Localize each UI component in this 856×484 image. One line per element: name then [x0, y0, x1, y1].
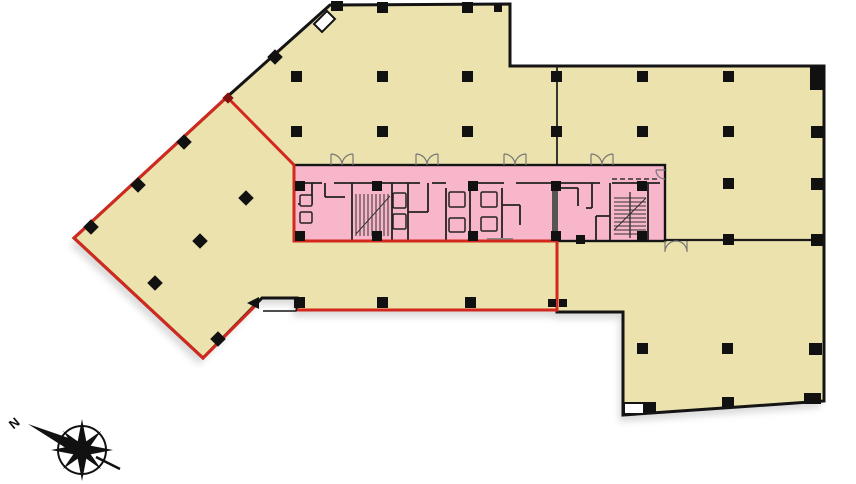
column [809, 343, 822, 355]
column [811, 126, 823, 138]
column [722, 343, 733, 354]
floor-plan-svg: N [0, 0, 856, 484]
column [468, 231, 478, 241]
north-label: N [6, 414, 23, 432]
column [295, 181, 305, 191]
column [462, 126, 473, 137]
elevator [481, 192, 497, 207]
column [637, 181, 647, 191]
column [559, 299, 567, 307]
column [644, 402, 656, 412]
column [811, 178, 823, 190]
column [637, 126, 648, 137]
column [637, 71, 648, 82]
column [576, 235, 585, 244]
column [294, 297, 305, 308]
column [551, 126, 562, 137]
column [637, 231, 647, 241]
column [551, 181, 561, 191]
elevator [449, 218, 465, 232]
column [723, 71, 734, 82]
column [372, 181, 382, 191]
column [291, 126, 302, 137]
elevator [393, 193, 406, 208]
elevator [393, 214, 406, 229]
core-shaft-wall [552, 186, 558, 234]
column [331, 1, 343, 11]
column [811, 234, 823, 246]
column [291, 71, 302, 82]
column [723, 126, 734, 137]
column [551, 71, 562, 82]
column [377, 71, 388, 82]
elevator [481, 217, 497, 231]
column [295, 231, 305, 241]
column [548, 299, 556, 307]
column [377, 126, 388, 137]
elevator [300, 212, 312, 223]
column [723, 178, 734, 189]
column [377, 2, 388, 13]
column [462, 71, 473, 82]
floor-plan-canvas: N [0, 0, 856, 484]
column [465, 297, 476, 308]
elevator [300, 195, 312, 206]
column [372, 231, 382, 241]
column [494, 4, 502, 12]
column [804, 393, 821, 404]
column [637, 343, 648, 354]
column [810, 66, 825, 90]
column [723, 234, 734, 245]
compass-needle [28, 424, 86, 457]
column [468, 181, 478, 191]
column [551, 231, 561, 241]
column [377, 297, 388, 308]
elevator [449, 192, 465, 207]
column [462, 2, 473, 13]
compass-rose: N [6, 412, 120, 484]
column [722, 397, 734, 407]
notch-bottom-right [624, 403, 644, 414]
